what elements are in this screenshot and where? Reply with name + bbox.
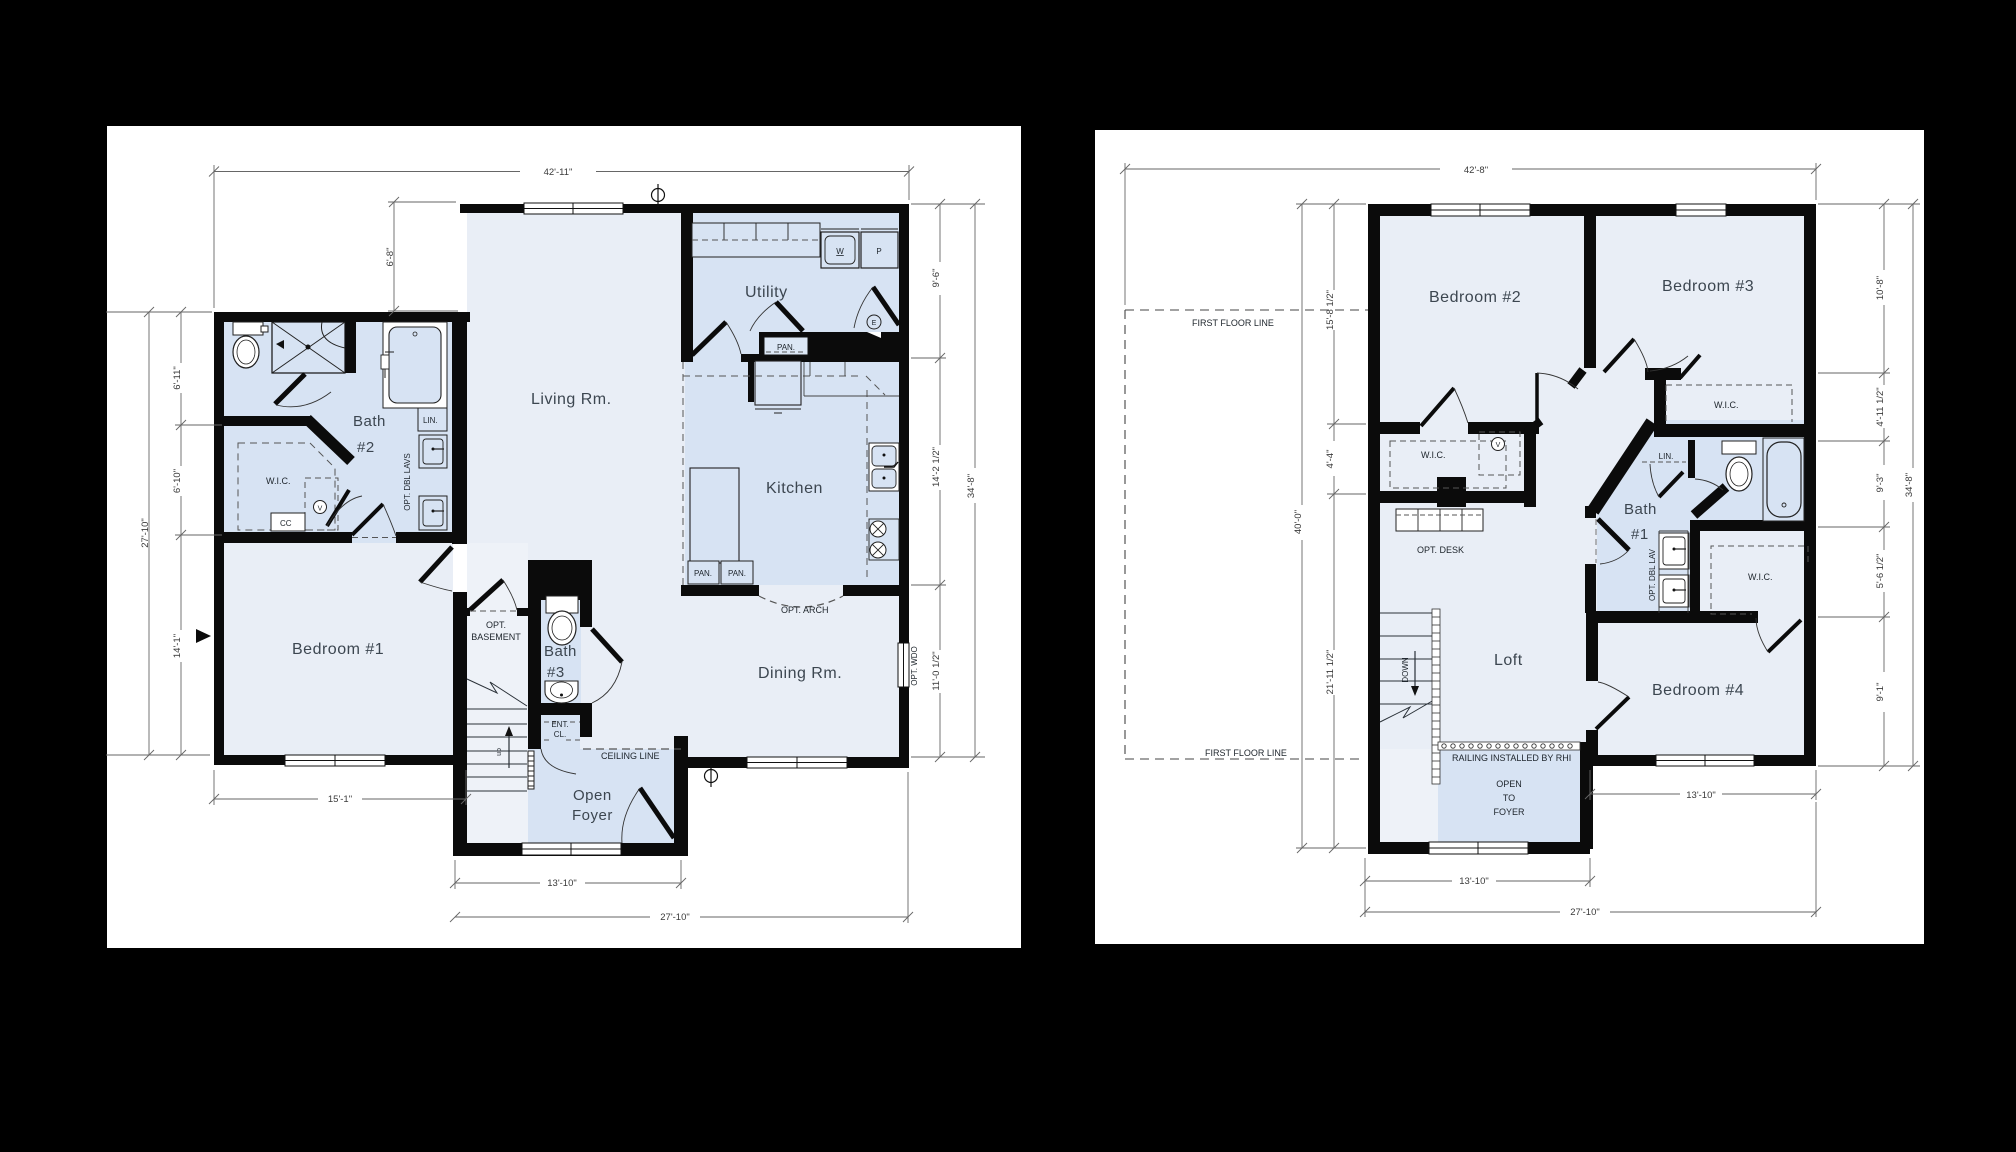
svg-text:27'-10": 27'-10" [660,912,689,923]
svg-text:W.I.C.: W.I.C. [266,476,291,486]
svg-text:W.I.C.: W.I.C. [1714,400,1739,410]
svg-text:9'-3": 9'-3" [1875,474,1886,493]
svg-text:Bedroom #3: Bedroom #3 [1662,278,1754,295]
svg-text:PAN.: PAN. [777,343,795,352]
svg-text:Living Rm.: Living Rm. [531,391,612,408]
svg-text:15'-1": 15'-1" [328,794,352,805]
svg-text:OPT. DESK: OPT. DESK [1417,545,1464,555]
svg-text:4'-4": 4'-4" [1325,450,1336,469]
svg-text:V: V [1496,442,1501,449]
svg-text:10'-8": 10'-8" [1875,276,1886,300]
svg-text:PAN.: PAN. [694,569,712,578]
svg-text:OPT. DBL LAVS: OPT. DBL LAVS [403,453,412,510]
svg-text:4'-11 1/2": 4'-11 1/2" [1875,387,1886,426]
svg-text:6'-11": 6'-11" [172,366,183,390]
svg-text:11'-0 1/2": 11'-0 1/2" [931,651,942,690]
svg-text:Bath: Bath [544,643,577,660]
svg-text:9'-1": 9'-1" [1875,683,1886,702]
svg-text:ENT.: ENT. [551,720,568,729]
svg-text:W.I.C.: W.I.C. [1748,572,1773,582]
svg-text:Bath: Bath [353,413,386,430]
svg-text:CC: CC [280,519,292,528]
svg-text:27'-10": 27'-10" [1570,907,1599,918]
svg-text:TO: TO [1503,793,1515,803]
svg-text:CEILING LINE: CEILING LINE [601,751,660,761]
svg-text:V: V [318,506,323,513]
svg-text:OPT. WDO: OPT. WDO [910,646,919,686]
svg-text:13'-10": 13'-10" [547,878,576,889]
svg-text:up: up [496,748,503,756]
svg-text:Loft: Loft [1494,652,1523,669]
svg-text:FIRST FLOOR LINE: FIRST FLOOR LINE [1192,318,1274,328]
svg-text:14'-2 1/2": 14'-2 1/2" [931,447,942,487]
svg-text:42'-11": 42'-11" [544,167,573,178]
svg-text:FIRST FLOOR LINE: FIRST FLOOR LINE [1205,748,1287,758]
svg-text:#3: #3 [547,664,565,681]
svg-text:BASEMENT: BASEMENT [471,632,521,642]
svg-text:40'-0": 40'-0" [1293,510,1304,534]
svg-text:LIN.: LIN. [423,416,438,425]
svg-text:DOWN: DOWN [1401,657,1410,683]
svg-text:Kitchen: Kitchen [766,480,823,497]
svg-text:5'-6 1/2": 5'-6 1/2" [1875,554,1886,589]
svg-text:CL.: CL. [554,730,566,739]
svg-text:RAILING INSTALLED BY RHI: RAILING INSTALLED BY RHI [1452,753,1571,763]
svg-text:OPEN: OPEN [1496,779,1522,789]
svg-text:Bedroom #4: Bedroom #4 [1652,682,1744,699]
svg-text:9'-6": 9'-6" [931,269,942,288]
svg-text:#1: #1 [1631,526,1649,543]
svg-text:PAN.: PAN. [728,569,746,578]
svg-text:Dining Rm.: Dining Rm. [758,665,842,682]
svg-text:15'-8 1/2": 15'-8 1/2" [1325,290,1336,330]
svg-text:Bath: Bath [1624,501,1657,518]
svg-text:21'-11 1/2": 21'-11 1/2" [1325,650,1336,695]
svg-text:P: P [876,247,881,256]
svg-text:13'-10": 13'-10" [1686,790,1715,801]
svg-text:13'-10": 13'-10" [1459,876,1488,887]
svg-text:FOYER: FOYER [1493,807,1525,817]
svg-text:OPT. ARCH: OPT. ARCH [781,605,829,615]
svg-text:#2: #2 [357,439,375,456]
svg-text:42'-8": 42'-8" [1464,165,1488,176]
svg-text:14'-1": 14'-1" [172,634,183,658]
svg-text:E: E [872,320,877,327]
svg-text:Bedroom #2: Bedroom #2 [1429,289,1521,306]
svg-text:LIN.: LIN. [1659,452,1674,461]
svg-text:W.I.C.: W.I.C. [1421,450,1446,460]
svg-text:34'-8": 34'-8" [966,474,977,498]
svg-text:27'-10": 27'-10" [140,518,151,547]
svg-text:OPT.: OPT. [486,620,506,630]
svg-text:Utility: Utility [745,284,788,301]
svg-text:6'-10": 6'-10" [172,469,183,493]
svg-text:OPT. DBL LAV: OPT. DBL LAV [1648,548,1657,601]
svg-text:34'-8": 34'-8" [1904,473,1915,497]
svg-text:W: W [836,247,844,256]
svg-text:6'-8": 6'-8" [385,248,396,267]
svg-text:Bedroom #1: Bedroom #1 [292,641,384,658]
svg-text:Foyer: Foyer [572,807,613,824]
svg-text:Open: Open [573,787,612,804]
